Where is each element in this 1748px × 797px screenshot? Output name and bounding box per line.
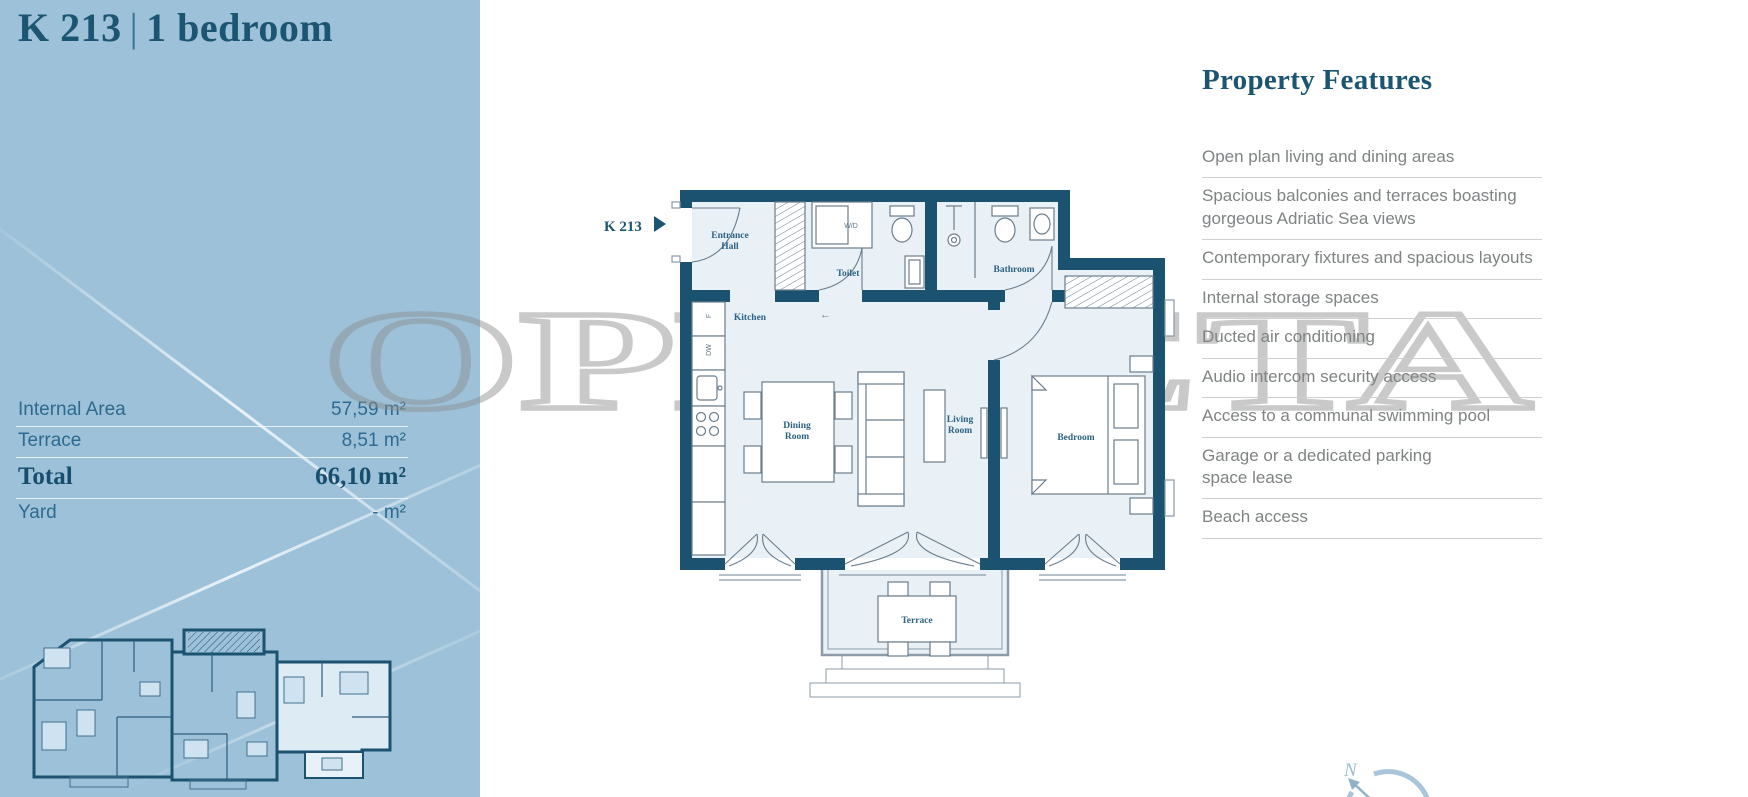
area-label: Total	[18, 463, 73, 491]
feature-item: Internal storage spaces	[1202, 280, 1542, 319]
room-label-entrance-1: Entrance	[711, 231, 748, 241]
unit-marker-label: K 213	[604, 219, 642, 235]
feature-item: Open plan living and dining areas	[1202, 139, 1542, 178]
room-label-bathroom: Bathroom	[994, 265, 1035, 275]
unit-type: 1 bedroom	[146, 5, 333, 50]
storage-closet	[775, 202, 805, 290]
unit-code: K 213	[18, 5, 122, 50]
kitchen-fixtures	[692, 302, 725, 555]
area-value: 66,10 m²	[315, 463, 406, 491]
area-row-internal: Internal Area 57,59 m²	[16, 396, 408, 427]
mini-floor-plan	[22, 622, 397, 792]
area-value: 57,59 m²	[331, 399, 406, 421]
compass-north-label: N	[1343, 760, 1358, 781]
brochure-page: K 213|1 bedroom Internal Area 57,59 m² T…	[0, 0, 1748, 797]
floor-plan: K 213	[590, 150, 1230, 710]
features-title: Property Features	[1202, 64, 1542, 97]
area-row-total: Total 66,10 m²	[16, 458, 408, 499]
area-row-terrace: Terrace 8,51 m²	[16, 427, 408, 458]
dishwasher-label: DW	[706, 344, 713, 356]
fridge-label: F	[706, 314, 713, 318]
room-label-toilet: Toilet	[837, 269, 861, 279]
area-value: 8,51 m²	[342, 430, 406, 452]
washer-dryer-label: W/D	[844, 223, 858, 230]
feature-item: Contemporary fixtures and spacious layou…	[1202, 240, 1542, 279]
sidebar: K 213|1 bedroom Internal Area 57,59 m² T…	[0, 0, 480, 797]
feature-item: Ducted air conditioning	[1202, 319, 1542, 358]
area-label: Terrace	[18, 430, 81, 452]
title-separator: |	[122, 5, 147, 50]
area-table: Internal Area 57,59 m² Terrace 8,51 m² T…	[16, 396, 408, 529]
room-label-terrace: Terrace	[901, 616, 932, 626]
room-label-bedroom: Bedroom	[1057, 433, 1094, 443]
wardrobe	[1065, 276, 1153, 308]
feature-item: Audio intercom security access	[1202, 359, 1542, 398]
room-label-dining-2: Room	[785, 432, 809, 442]
page-title: K 213|1 bedroom	[18, 4, 333, 51]
feature-item: Beach access	[1202, 499, 1542, 538]
unit-marker-arrow-icon	[654, 216, 666, 232]
corridor-arrow-icon: ←	[820, 309, 831, 321]
feature-item: Spacious balconies and terraces boasting…	[1202, 178, 1542, 240]
feature-item: Access to a communal swimming pool	[1202, 398, 1542, 437]
area-label: Internal Area	[18, 399, 126, 421]
room-label-dining-1: Dining	[783, 421, 811, 431]
area-row-yard: Yard - m²	[16, 499, 408, 529]
room-label-kitchen: Kitchen	[734, 313, 767, 323]
property-features: Property Features Open plan living and d…	[1202, 64, 1542, 539]
room-label-living-2: Room	[948, 426, 972, 436]
area-value: - m²	[372, 502, 406, 524]
compass-icon: N	[1322, 752, 1452, 797]
room-label-entrance-2: Hall	[721, 242, 739, 252]
area-label: Yard	[18, 502, 57, 524]
unit-marker: K 213	[604, 216, 666, 235]
mini-stairs	[188, 632, 260, 652]
feature-item: Garage or a dedicated parking space leas…	[1202, 438, 1542, 500]
room-label-living-1: Living	[947, 415, 974, 425]
